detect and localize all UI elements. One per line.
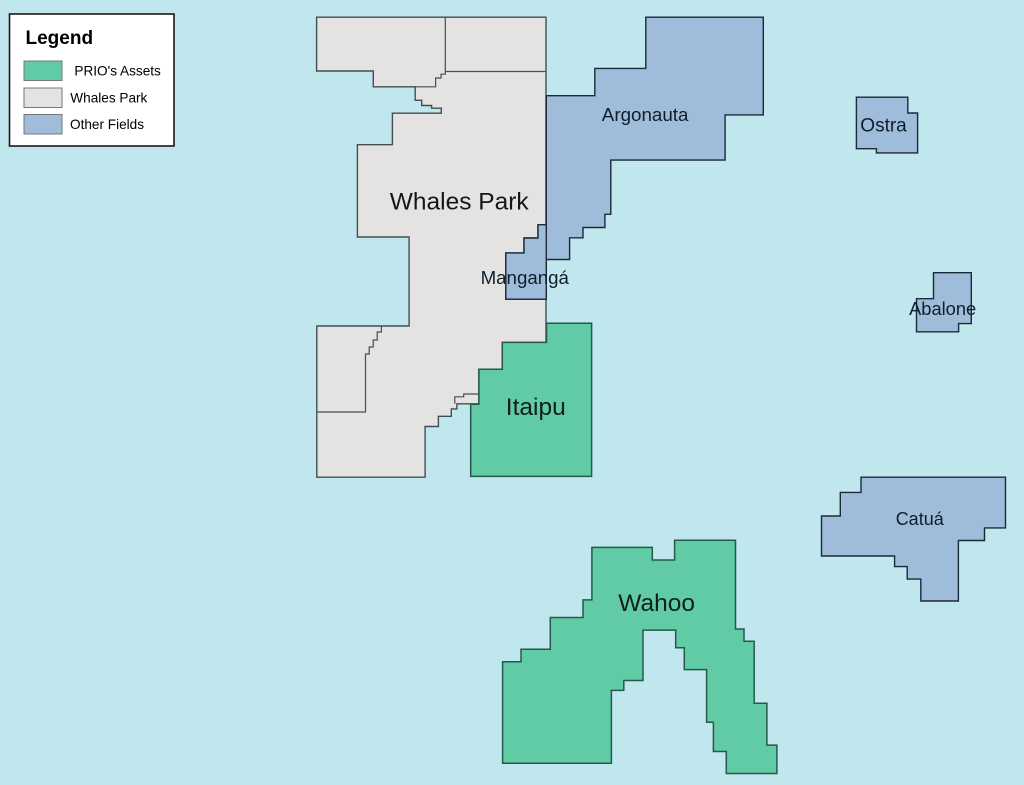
svg-text:PRIO's Assets: PRIO's Assets [74, 64, 161, 79]
svg-text:Catuá: Catuá [896, 509, 945, 529]
svg-text:Mangangá: Mangangá [481, 267, 570, 288]
svg-text:Whales Park: Whales Park [70, 90, 147, 105]
svg-text:Itaipu: Itaipu [506, 394, 566, 421]
svg-text:Wahoo: Wahoo [618, 590, 695, 617]
svg-text:Other Fields: Other Fields [70, 117, 144, 132]
svg-text:Legend: Legend [26, 28, 94, 49]
svg-text:Ostra: Ostra [860, 115, 907, 136]
svg-text:Whales Park: Whales Park [390, 189, 530, 216]
svg-text:Argonauta: Argonauta [602, 104, 689, 125]
svg-text:Abalone: Abalone [909, 298, 976, 319]
